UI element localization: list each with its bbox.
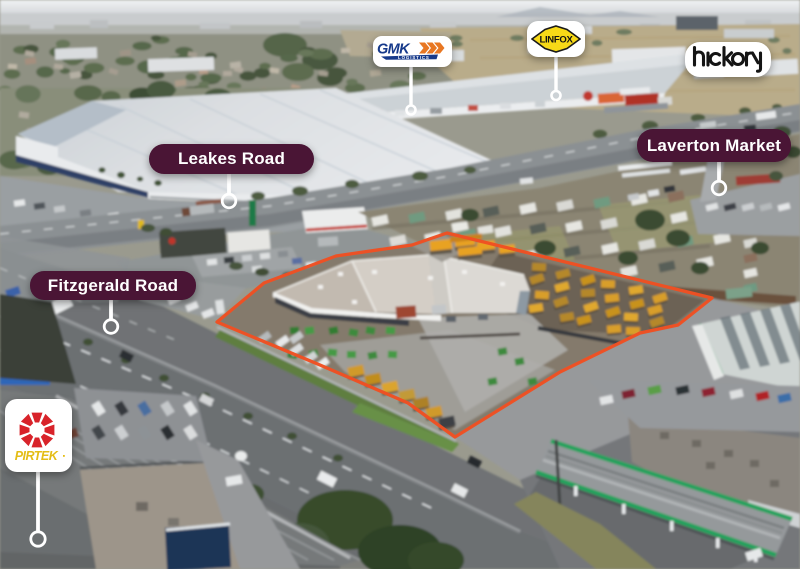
svg-text:PIRTEK: PIRTEK: [15, 449, 59, 463]
svg-text:LINFOX: LINFOX: [539, 35, 573, 46]
svg-text:LOGISTICS: LOGISTICS: [398, 55, 430, 60]
